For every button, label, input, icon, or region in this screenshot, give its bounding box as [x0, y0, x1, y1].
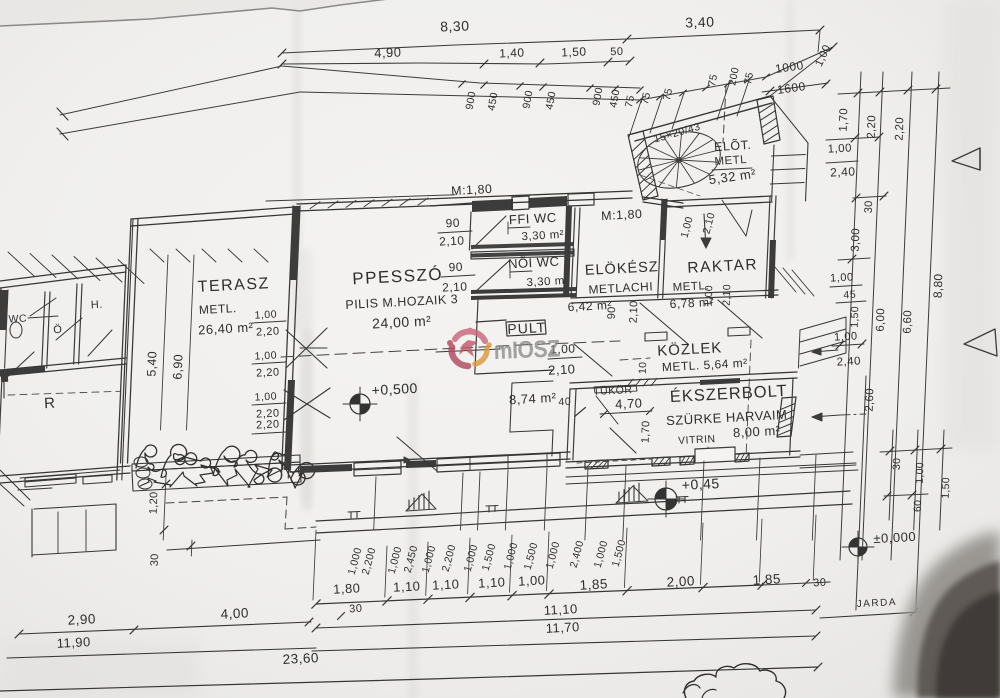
svg-text:2,20: 2,20 — [866, 115, 879, 139]
svg-text:1,50: 1,50 — [940, 477, 953, 499]
svg-text:1,00: 1,00 — [827, 142, 852, 155]
svg-text:H.: H. — [91, 299, 104, 312]
svg-text:8,74 m²: 8,74 m² — [509, 390, 557, 407]
svg-text:75: 75 — [623, 94, 637, 109]
svg-text:3,00: 3,00 — [850, 228, 863, 252]
svg-text:2,20: 2,20 — [894, 117, 907, 141]
svg-text:2,00: 2,00 — [666, 573, 695, 589]
svg-text:WC: WC — [8, 313, 27, 326]
svg-text:8,30: 8,30 — [440, 17, 470, 34]
svg-text:2,20: 2,20 — [256, 418, 280, 431]
svg-text:KÖZLEK: KÖZLEK — [657, 338, 723, 359]
svg-text:1,40: 1,40 — [499, 46, 525, 61]
svg-text:1,70: 1,70 — [640, 420, 653, 443]
svg-text:11,10: 11,10 — [543, 601, 578, 618]
svg-text:R: R — [44, 395, 56, 413]
svg-text:6,90: 6,90 — [171, 354, 186, 380]
svg-text:NÕI WC: NÕI WC — [508, 254, 560, 272]
svg-text:1,10: 1,10 — [478, 574, 506, 590]
svg-text:90: 90 — [445, 216, 460, 231]
svg-text:M:1,80: M:1,80 — [601, 207, 643, 223]
svg-text:1,00: 1,00 — [703, 285, 716, 307]
svg-text:4,90: 4,90 — [374, 45, 402, 61]
svg-text:3,30 m²: 3,30 m² — [526, 275, 569, 289]
svg-text:METL: METL — [714, 154, 748, 168]
svg-text:M:1,80: M:1,80 — [451, 182, 493, 198]
svg-text:2,40: 2,40 — [836, 355, 861, 368]
svg-text:2,90: 2,90 — [67, 611, 96, 627]
svg-text:1,00: 1,00 — [254, 308, 277, 321]
svg-text:1,00: 1,00 — [254, 349, 277, 362]
svg-text:±0,000: ±0,000 — [873, 529, 916, 546]
svg-text:1,80: 1,80 — [333, 580, 361, 596]
svg-text:1,00: 1,00 — [830, 271, 854, 284]
svg-text:45: 45 — [843, 289, 856, 302]
svg-text:2,20: 2,20 — [256, 366, 280, 379]
svg-text:6,60: 6,60 — [902, 310, 915, 334]
svg-text:PULT: PULT — [507, 319, 547, 337]
svg-text:8,00 m²: 8,00 m² — [733, 423, 781, 440]
svg-text:1,20: 1,20 — [148, 491, 161, 514]
svg-text:4,70: 4,70 — [615, 395, 643, 411]
svg-text:26,40 m²: 26,40 m² — [198, 320, 254, 338]
svg-text:1,85: 1,85 — [579, 576, 608, 592]
svg-text:3,40: 3,40 — [685, 13, 715, 30]
svg-text:+0,45: +0,45 — [681, 475, 720, 493]
svg-text:mIOSZ: mIOSZ — [493, 335, 560, 364]
svg-text:3,30 m²: 3,30 m² — [521, 229, 564, 243]
svg-text:2,20: 2,20 — [256, 325, 280, 338]
svg-text:JARDA: JARDA — [856, 597, 897, 610]
svg-text:50: 50 — [610, 46, 624, 58]
svg-text:30: 30 — [891, 458, 903, 471]
svg-text:6,00: 6,00 — [875, 308, 888, 332]
svg-text:1,50: 1,50 — [849, 306, 862, 328]
svg-text:10: 10 — [637, 362, 649, 375]
svg-text:2,10: 2,10 — [442, 279, 468, 294]
svg-text:1,10: 1,10 — [393, 578, 421, 594]
svg-text:+0,500: +0,500 — [371, 380, 418, 398]
svg-text:23,60: 23,60 — [282, 650, 319, 667]
svg-text:8,80: 8,80 — [931, 273, 946, 298]
svg-text:24,00 m²: 24,00 m² — [372, 312, 432, 331]
svg-text:1,10: 1,10 — [432, 576, 460, 592]
svg-text:1,70: 1,70 — [838, 108, 851, 132]
svg-text:11,90: 11,90 — [56, 634, 91, 651]
svg-text:30: 30 — [149, 553, 161, 566]
svg-text:90: 90 — [606, 306, 618, 319]
svg-text:FFI WC: FFI WC — [509, 210, 557, 227]
svg-text:Ö: Ö — [53, 324, 63, 336]
svg-text:2,10: 2,10 — [628, 300, 641, 323]
svg-text:1,00: 1,00 — [518, 572, 546, 588]
svg-text:11,70: 11,70 — [545, 619, 580, 636]
svg-text:1,50: 1,50 — [561, 45, 587, 60]
svg-text:4,00: 4,00 — [220, 605, 249, 621]
svg-text:30: 30 — [349, 603, 363, 616]
svg-text:METL.: METL. — [199, 301, 238, 317]
svg-text:1,00: 1,00 — [914, 462, 927, 484]
svg-text:90: 90 — [448, 260, 463, 275]
svg-text:2,10: 2,10 — [721, 284, 734, 306]
svg-text:2,10: 2,10 — [548, 361, 576, 377]
svg-text:30: 30 — [863, 200, 875, 213]
svg-text:VITRIN: VITRIN — [678, 433, 716, 447]
svg-text:ELÕT.: ELÕT. — [714, 137, 752, 155]
svg-text:1,00: 1,00 — [254, 390, 277, 403]
svg-text:2,40: 2,40 — [830, 164, 856, 179]
svg-text:2,10: 2,10 — [439, 233, 465, 248]
svg-text:5,40: 5,40 — [145, 351, 160, 377]
svg-text:60: 60 — [912, 500, 924, 513]
